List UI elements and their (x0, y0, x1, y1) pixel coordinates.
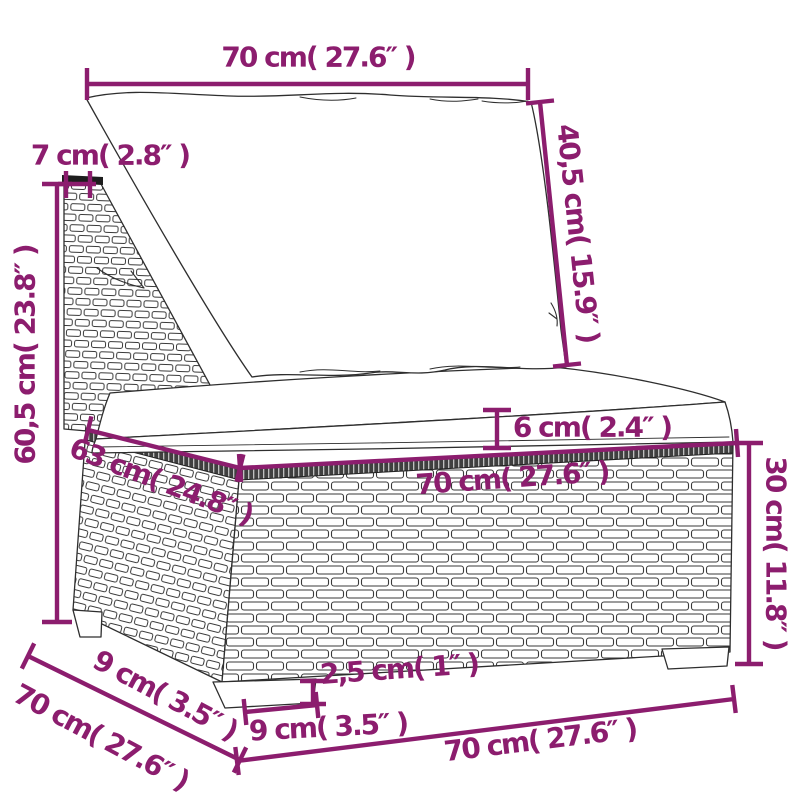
dim-label-back-total-height: 60,5 cm( 23.8″ ) (9, 245, 42, 464)
dimension-back-total-height: 60,5 cm( 23.8″ ) (9, 184, 73, 622)
dim-label-total-width: 70 cm( 27.6″ ) (442, 712, 638, 768)
dimension-back-width: 70 cm( 27.6″ ) (87, 41, 528, 101)
dim-label-frame-thickness: 7 cm( 2.8″ ) (31, 139, 189, 172)
dimension-diagram-canvas: 70 cm( 27.6″ ) 7 cm( 2.8″ ) 40,5 cm( 15.… (0, 0, 800, 800)
dim-label-seat-cushion-thickness: 6 cm( 2.4″ ) (513, 411, 671, 444)
leg-back-left (73, 610, 102, 637)
dimension-base-height: 30 cm( 11.8″ ) (735, 443, 793, 664)
sofa-dimension-diagram: 70 cm( 27.6″ ) 7 cm( 2.8″ ) 40,5 cm( 15.… (0, 0, 800, 800)
leg-front-right (662, 647, 729, 669)
dim-label-back-width: 70 cm( 27.6″ ) (221, 41, 414, 74)
dim-label-base-height: 30 cm( 11.8″ ) (760, 456, 793, 649)
dim-line (735, 443, 763, 664)
